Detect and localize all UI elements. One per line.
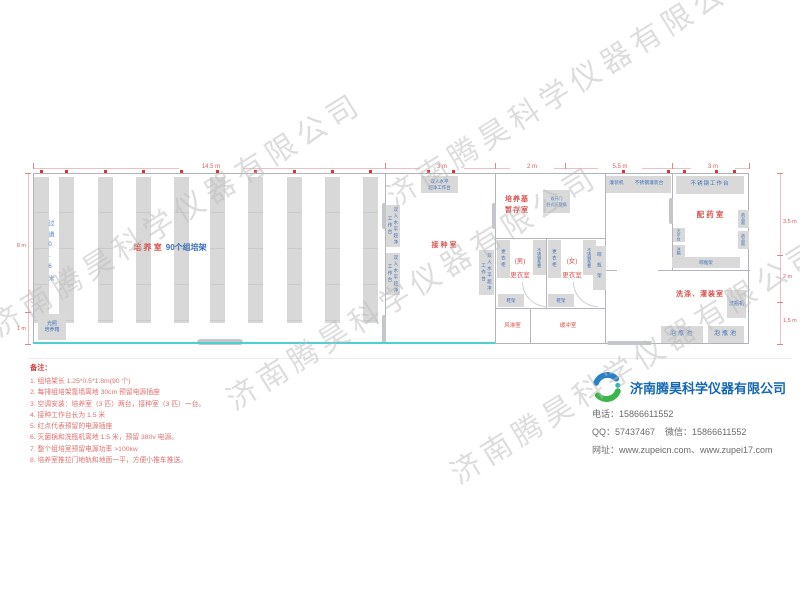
note-item: 2. 每排组培架靠墙离地 30cm 预留电源插座 xyxy=(30,387,340,398)
dimension-line-right xyxy=(780,173,781,345)
note-item: 6. 灭菌锅和洗瓶机离地 1.5 米，预留 380v 电源。 xyxy=(30,432,340,443)
culture-rack xyxy=(363,177,378,323)
sterilizer-label-2: 卧式灭菌锅 xyxy=(547,202,567,207)
culture-room-label: 培 养 室90个组培架 xyxy=(95,242,245,253)
incubator-box: 光照 培养箱 xyxy=(38,314,66,340)
section-divider xyxy=(28,358,792,359)
dimension-ticks-right xyxy=(777,173,783,174)
notes-block: 备注： 1. 组培架长 1.25*0.5*1.8m(90 个)2. 每排组培架靠… xyxy=(30,362,340,466)
women-changing-label-2: 更衣室 xyxy=(557,269,587,283)
incubator-label-2: 培养箱 xyxy=(44,327,59,334)
dim-label: 1.5 m xyxy=(783,319,797,325)
media-room-label-2: 暂存室 xyxy=(497,205,537,216)
men-changing-label-2: 更衣室 xyxy=(505,269,535,283)
culture-room-racks-count: 90个组培架 xyxy=(166,243,207,252)
dim-label: 3 m xyxy=(691,164,735,170)
clean-bench-box: 双人水平超净工作台 xyxy=(386,205,400,247)
buffer-room-label: 缓冲室 xyxy=(531,321,605,329)
men-changing-label-1: (男) xyxy=(505,255,535,269)
wall xyxy=(495,173,496,344)
dim-label: 8 m xyxy=(6,244,26,250)
air-shower-label: 风淋室 xyxy=(495,321,530,329)
note-item: 5. 红点代表预留的电源插座 xyxy=(30,421,340,432)
clean-bench-box: 双人水平 超净工作台 xyxy=(421,176,458,193)
door-leaf xyxy=(607,341,652,345)
dim-label: 3.5 m xyxy=(783,220,797,226)
dimension-ticks-left xyxy=(25,173,31,174)
dimension-ticks-top xyxy=(33,163,34,169)
culture-room-name: 培 养 室 xyxy=(133,243,161,252)
bottle-washer-box: 洗瓶机 xyxy=(727,290,746,318)
culture-rack xyxy=(287,177,302,323)
women-changing-label-1: (女) xyxy=(557,255,587,269)
notes-list: 1. 组培架长 1.25*0.5*1.8m(90 个)2. 每排组培架靠墙离地 … xyxy=(30,376,340,466)
medicine-cabinet-box: 药品柜 xyxy=(738,210,749,228)
culture-rack xyxy=(248,177,263,323)
pharmacy-room-label: 配 药 室 xyxy=(680,209,740,220)
company-website: 网址：www.zupeicn.com、www.zupei17.com xyxy=(592,443,797,456)
note-item: 8. 培养室推拉门地轨和地面一平，方便小推车推送。 xyxy=(30,455,340,466)
note-item: 3. 空调安装：培养室（3 匹）两台，接种室（3 匹）一台。 xyxy=(30,399,340,410)
company-name: 济南腾昊科学仪器有限公司 xyxy=(630,378,786,397)
balance-table-box: 天平台 xyxy=(673,228,685,242)
door-leaf xyxy=(669,198,673,224)
dim-label: 1 m xyxy=(6,327,26,333)
clean-bench-label-2: 超净工作台 xyxy=(428,185,451,191)
dim-label: 2 m xyxy=(510,164,554,170)
soaking-pool-box: 泡瓶池 xyxy=(708,326,744,343)
company-qq-wechat: QQ：57437467 微信：15866611552 xyxy=(592,425,797,438)
dim-label: 3 m xyxy=(420,164,464,170)
soaking-pool-box: 泡瓶池 xyxy=(661,326,703,343)
company-header: 济南腾昊科学仪器有限公司 xyxy=(592,372,797,402)
company-logo-icon xyxy=(592,372,622,402)
fridge-box: 冰箱 xyxy=(673,245,685,257)
media-room-label-1: 培养基 xyxy=(497,194,537,205)
notes-title: 备注： xyxy=(30,362,340,374)
door-leaf xyxy=(492,203,496,229)
dimension-line-left xyxy=(28,173,29,345)
dim-label: 5.5 m xyxy=(598,164,642,170)
wall xyxy=(605,270,617,271)
medicine-cabinet-box: 药品柜 xyxy=(738,231,749,249)
sterilizer-box: 双开门 卧式灭菌锅 xyxy=(543,190,570,213)
dim-label: 2 m xyxy=(783,275,792,281)
filling-machine-box: 灌装机 xyxy=(606,176,627,193)
note-item: 1. 组培架长 1.25*0.5*1.8m(90 个) xyxy=(30,376,340,387)
glass-wall-line xyxy=(33,342,495,344)
company-block: 济南腾昊科学仪器有限公司 电话：15866611552 QQ：57437467 … xyxy=(592,372,797,456)
filling-table-box: 不锈钢灌装台 xyxy=(627,176,671,193)
drying-rack-box: 晾瓶架 xyxy=(672,257,740,268)
power-outlet-dots xyxy=(0,170,3,173)
media-room-label: 培养基 暂存室 xyxy=(497,194,537,216)
men-changing-label: (男) 更衣室 xyxy=(505,255,535,282)
clean-bench-box: 双人水平超净工作台 xyxy=(386,253,400,295)
shoe-rack-box: 鞋架 xyxy=(498,294,524,307)
door-leaf xyxy=(382,315,386,343)
worktable-box: 不锈钢工作台 xyxy=(676,176,744,194)
dim-label: 14.5 m xyxy=(179,164,243,170)
aisle-label: 过道0.6米 xyxy=(46,220,55,324)
women-changing-label: (女) 更衣室 xyxy=(557,255,587,282)
note-item: 7. 整个组培室预留电源功率 >100kw xyxy=(30,444,340,455)
inoculation-room-label: 接种室 xyxy=(405,240,485,250)
wall xyxy=(658,270,750,271)
clean-bench-box: 双人水平超净工作台 xyxy=(479,250,494,295)
shoe-rack-box: 鞋架 xyxy=(548,294,574,307)
culture-rack xyxy=(325,177,340,323)
floorplan-canvas: 过道0.6米 培 养 室90个组培架 光照 培养箱 双人水平 超净工作台 双人水… xyxy=(0,0,800,600)
company-phone: 电话：15866611552 xyxy=(592,407,797,420)
wall xyxy=(495,238,605,239)
wall xyxy=(495,308,605,309)
note-item: 4. 接种工作台长为 1.5 米 xyxy=(30,410,340,421)
culture-rack xyxy=(59,177,74,323)
